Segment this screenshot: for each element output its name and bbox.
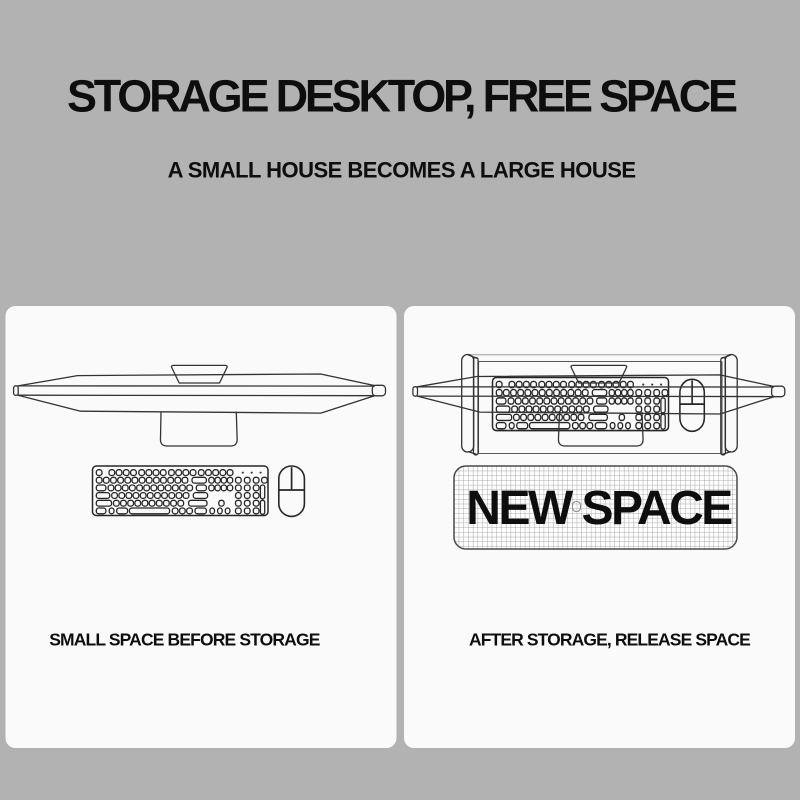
svg-text:STORAGE DESKTOP, FREE SPACE: STORAGE DESKTOP, FREE SPACE <box>67 70 738 121</box>
svg-text:SMALL SPACE BEFORE STORAGE: SMALL SPACE BEFORE STORAGE <box>49 630 320 650</box>
svg-text:A SMALL HOUSE BECOMES A LARGE: A SMALL HOUSE BECOMES A LARGE HOUSE <box>168 157 636 182</box>
svg-text:NEW SPACE: NEW SPACE <box>466 482 733 535</box>
svg-text:AFTER STORAGE, RELEASE SPACE: AFTER STORAGE, RELEASE SPACE <box>469 630 751 650</box>
